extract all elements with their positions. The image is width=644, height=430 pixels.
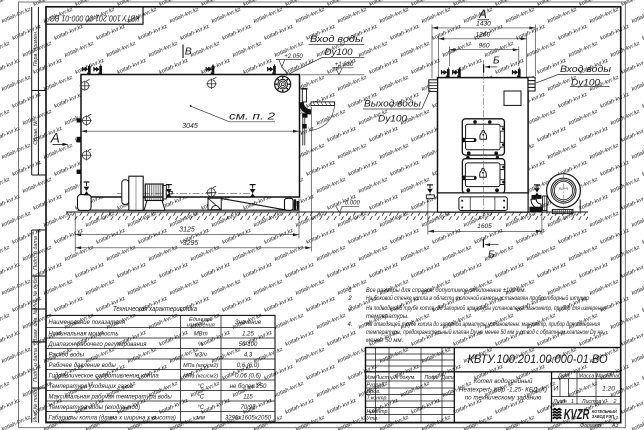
svg-text:температуры, предохранительный: температуры, предохранительный клапан Dу… <box>366 329 604 336</box>
svg-text:Котел водогрейный: Котел водогрейный <box>474 378 533 385</box>
svg-text:1: 1 <box>348 288 351 294</box>
svg-text:3125: 3125 <box>179 227 195 234</box>
svg-text:Температура воды (вход/выход): Температура воды (вход/выход) <box>49 405 141 411</box>
svg-text:1:20: 1:20 <box>602 386 615 393</box>
svg-text:измерения: измерения <box>187 323 215 329</box>
svg-text:1260: 1260 <box>475 31 490 38</box>
svg-text:Техническая характеристика: Техническая характеристика <box>113 306 197 313</box>
svg-text:Выход воды: Выход воды <box>364 99 421 110</box>
svg-text:ВЦ14-46: ВЦ14-46 <box>559 188 569 191</box>
svg-text:Масштаб: Масштаб <box>596 373 622 379</box>
svg-text:МПа (кгс/см2): МПа (кгс/см2) <box>183 363 218 369</box>
svg-text:Вход воды: Вход воды <box>560 64 611 75</box>
svg-text:На отводящей трубе котла до за: На отводящей трубе котла до запорной арм… <box>366 321 601 328</box>
svg-text:Подп. и дата: Подп. и дата <box>33 348 39 382</box>
svg-text:Максимальная рабочая температу: Максимальная рабочая температура воды <box>49 394 173 400</box>
svg-text:Расход воды: Расход воды <box>49 352 85 358</box>
svg-text:Изм: Изм <box>366 375 376 381</box>
svg-text:температуры.: температуры. <box>366 314 409 320</box>
svg-text:На боковой стенке котла в обла: На боковой стенке котла в области топочн… <box>366 295 590 302</box>
svg-text:50-100: 50-100 <box>239 342 258 348</box>
svg-text:Б: Б <box>488 250 495 261</box>
svg-text:Все размеры для справок, допус: Все размеры для справок, допустимое откл… <box>366 288 526 294</box>
svg-text:+1.930: +1.930 <box>335 62 354 68</box>
svg-text:Справ. №: Справ. № <box>33 120 39 145</box>
svg-text:Вход воды: Вход воды <box>310 34 363 45</box>
svg-text:На подводящей трубе котла, д: На подводящей трубе котла, до запорной а… <box>366 305 607 312</box>
svg-text:А: А <box>50 131 60 146</box>
svg-text:115: 115 <box>243 394 253 400</box>
svg-text:КВТУ.100.201.00.000-01 ВО: КВТУ.100.201.00.000-01 ВО <box>468 352 608 366</box>
svg-text:Лист: Лист <box>552 399 567 405</box>
svg-text:В: В <box>185 46 192 58</box>
svg-text:Номинальная мощность: Номинальная мощность <box>49 331 119 337</box>
svg-text:°С: °С <box>197 394 204 400</box>
svg-text:мм: мм <box>197 415 205 421</box>
svg-text:°С: °С <box>197 384 204 390</box>
svg-text:1430: 1430 <box>476 20 491 27</box>
svg-text:Dy100: Dy100 <box>325 47 354 58</box>
svg-text:3295х1605х2050: 3295х1605х2050 <box>225 415 272 421</box>
svg-text:ЗАВОД РЭП: ЗАВОД РЭП <box>592 414 615 419</box>
svg-text:А3: А3 <box>611 423 619 429</box>
svg-text:Пров.: Пров. <box>367 389 381 395</box>
svg-text:70/95: 70/95 <box>240 405 256 411</box>
svg-text:менее 50 мм.: менее 50 мм. <box>366 338 403 344</box>
svg-text:Формат: Формат <box>580 423 602 429</box>
svg-text:Лит.: Лит. <box>557 373 570 379</box>
svg-text:Наименование показателя: Наименование показателя <box>49 320 126 326</box>
svg-text:по техническому заданию: по техническому заданию <box>465 395 542 402</box>
svg-text:МВт: МВт <box>194 331 208 337</box>
svg-text:КВТУ.100.201.00.000-01 ВО: КВТУ.100.201.00.000-01 ВО <box>50 14 140 23</box>
svg-text:Инв. № подл.: Инв. № подл. <box>33 389 39 422</box>
svg-text:Гидравлическое сопротивление к: Гидравлическое сопротивление котла <box>49 373 160 379</box>
svg-text:А: А <box>478 9 487 21</box>
svg-text:Dy100: Dy100 <box>378 114 408 125</box>
svg-text:3045: 3045 <box>182 123 198 130</box>
svg-text:И: И <box>553 386 558 393</box>
svg-text:Рабочее давление воды: Рабочее давление воды <box>49 363 117 369</box>
svg-text:Листов: Листов <box>581 399 602 405</box>
svg-text:см. п. 2: см. п. 2 <box>229 111 275 123</box>
svg-text:м3/ч: м3/ч <box>195 352 207 358</box>
svg-text:Н.контр.: Н.контр. <box>367 409 389 415</box>
svg-text:Взам. инв. №: Взам. инв. № <box>33 309 39 343</box>
svg-text:°С: °С <box>197 405 204 411</box>
svg-text:1605: 1605 <box>477 223 492 230</box>
svg-text:Габариты котла (длина х шири: Габариты котла (длина х ширина х высота) <box>49 415 176 421</box>
svg-text:Разраб.: Разраб. <box>367 383 386 389</box>
svg-text:Перв. примен.: Перв. примен. <box>33 31 39 67</box>
svg-text:Утв.: Утв. <box>367 416 379 422</box>
svg-text:N докум.: N докум. <box>394 375 415 381</box>
svg-text:не более 250: не более 250 <box>230 384 267 390</box>
svg-text:0,06 (0,6): 0,06 (0,6) <box>235 373 261 379</box>
svg-text:+2.050: +2.050 <box>284 54 303 60</box>
svg-text:МПа (кгс/см2): МПа (кгс/см2) <box>183 373 218 379</box>
svg-text:Подп.: Подп. <box>424 375 438 381</box>
svg-text:2: 2 <box>613 399 617 405</box>
svg-text:960: 960 <box>478 42 489 49</box>
svg-text:Температура уходящих газов: Температура уходящих газов <box>49 384 134 390</box>
svg-text:КОТЕЛЬНЫЙ: КОТЕЛЬНЫЙ <box>592 409 618 414</box>
svg-text:1,25: 1,25 <box>242 331 254 337</box>
svg-text:4.: 4. <box>347 322 352 328</box>
svg-text:Б: Б <box>493 55 500 66</box>
svg-text:1: 1 <box>571 399 574 405</box>
svg-text:Лист: Лист <box>374 375 389 381</box>
svg-text:KVZR: KVZR <box>564 407 590 423</box>
svg-text:Инв. № дубл.: Инв. № дубл. <box>33 276 39 309</box>
svg-text:%: % <box>198 342 204 348</box>
svg-text:2: 2 <box>347 296 352 302</box>
svg-text:0,6 (6,0): 0,6 (6,0) <box>237 363 259 369</box>
svg-text:Значение: Значение <box>235 320 262 326</box>
svg-text:Масса: Масса <box>579 373 595 379</box>
svg-text:Т.контр.: Т.контр. <box>367 396 388 402</box>
svg-text:3295: 3295 <box>183 240 199 247</box>
svg-text:Диапазон рабочего регулировани: Диапазон рабочего регулирования <box>48 342 148 348</box>
svg-text:Подп. и дата: Подп. и дата <box>33 236 39 270</box>
svg-text:0.000: 0.000 <box>345 201 361 207</box>
svg-text:4,3: 4,3 <box>244 352 253 358</box>
svg-text:Heatexpert- КВр -1,25- КБД (К): Heatexpert- КВр -1,25- КБД (К) <box>459 386 547 393</box>
svg-text:Дата: Дата <box>440 375 455 381</box>
